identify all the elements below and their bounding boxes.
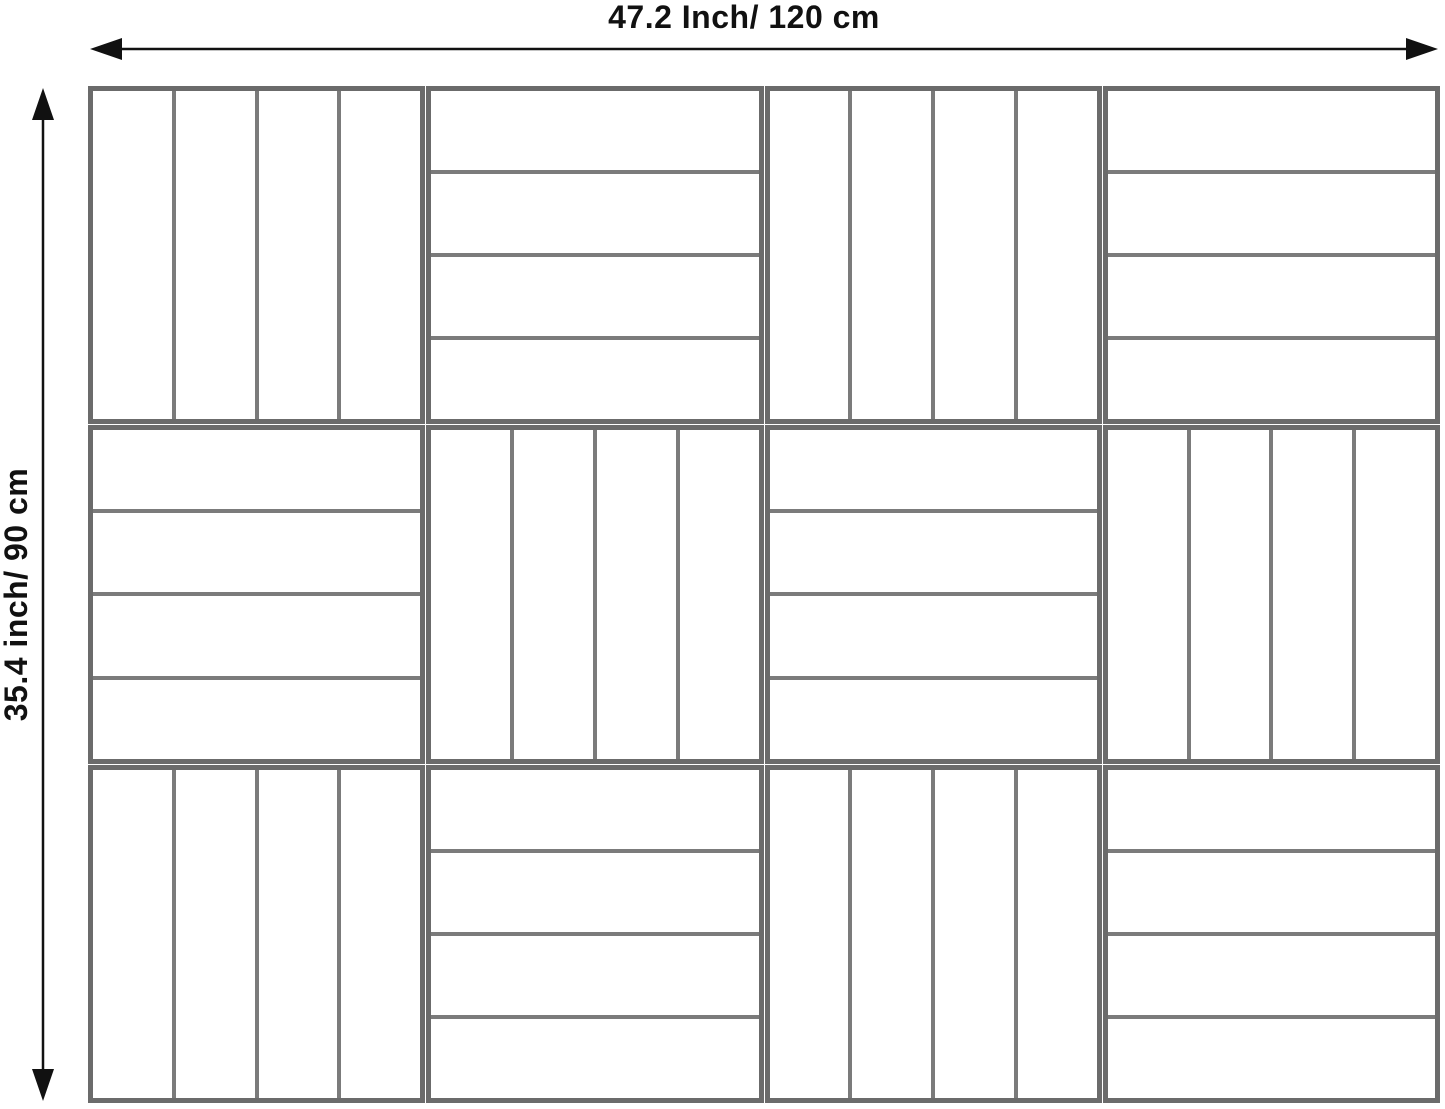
slat [93,91,172,419]
slat [431,91,758,170]
vertical-dimension-arrow [30,86,56,1103]
deck-tile-r3-c4-horizontal [1103,765,1440,1103]
deck-tile-r1-c2-horizontal [426,86,763,424]
slat [93,513,420,592]
arrow-up-icon [32,88,54,120]
slat [1108,174,1435,253]
deck-tile-r2-c2-vertical [426,425,763,763]
slat [341,770,420,1098]
slat [1108,853,1435,932]
deck-tile-r1-c4-horizontal [1103,86,1440,424]
deck-tile-r1-c3-vertical [765,86,1102,424]
slat [431,174,758,253]
slat [597,430,676,758]
slat [852,770,931,1098]
slat [93,770,172,1098]
slat [1191,430,1270,758]
slat [1018,91,1097,419]
slat [431,430,510,758]
deck-tile-r1-c1-vertical [88,86,425,424]
slat [770,513,1097,592]
arrow-right-icon [1406,38,1438,60]
slat [770,91,849,419]
slat [852,91,931,419]
slat [935,770,1014,1098]
slat [770,596,1097,675]
slat [770,770,849,1098]
slat [1108,340,1435,419]
deck-tile-r2-c3-horizontal [765,425,1102,763]
deck-tile-r3-c1-vertical [88,765,425,1103]
arrow-left-icon [90,38,122,60]
slat [1108,91,1435,170]
slat [176,770,255,1098]
slat [1108,770,1435,849]
deck-tile-r3-c2-horizontal [426,765,763,1103]
slat [1108,1019,1435,1098]
deck-tile-r2-c1-horizontal [88,425,425,763]
slat [93,596,420,675]
slat [680,430,759,758]
tile-grid [88,86,1440,1103]
slat [431,936,758,1015]
slat [259,770,338,1098]
slat [770,680,1097,759]
slat [770,430,1097,509]
slat [935,91,1014,419]
slat [431,257,758,336]
deck-tile-r2-c4-vertical [1103,425,1440,763]
slat [514,430,593,758]
width-dimension-label: 47.2 Inch/ 120 cm [68,0,1420,34]
slat [1108,936,1435,1015]
slat [1273,430,1352,758]
slat [93,680,420,759]
slat [431,853,758,932]
slat [1018,770,1097,1098]
arrow-down-icon [32,1069,54,1101]
slat [341,91,420,419]
deck-tile-r3-c3-vertical [765,765,1102,1103]
slat [431,1019,758,1098]
slat [259,91,338,419]
slat [1108,257,1435,336]
horizontal-dimension-arrow [88,36,1440,62]
slat [1108,430,1187,758]
slat [176,91,255,419]
slat [431,340,758,419]
slat [93,430,420,509]
slat [431,770,758,849]
slat [1356,430,1435,758]
